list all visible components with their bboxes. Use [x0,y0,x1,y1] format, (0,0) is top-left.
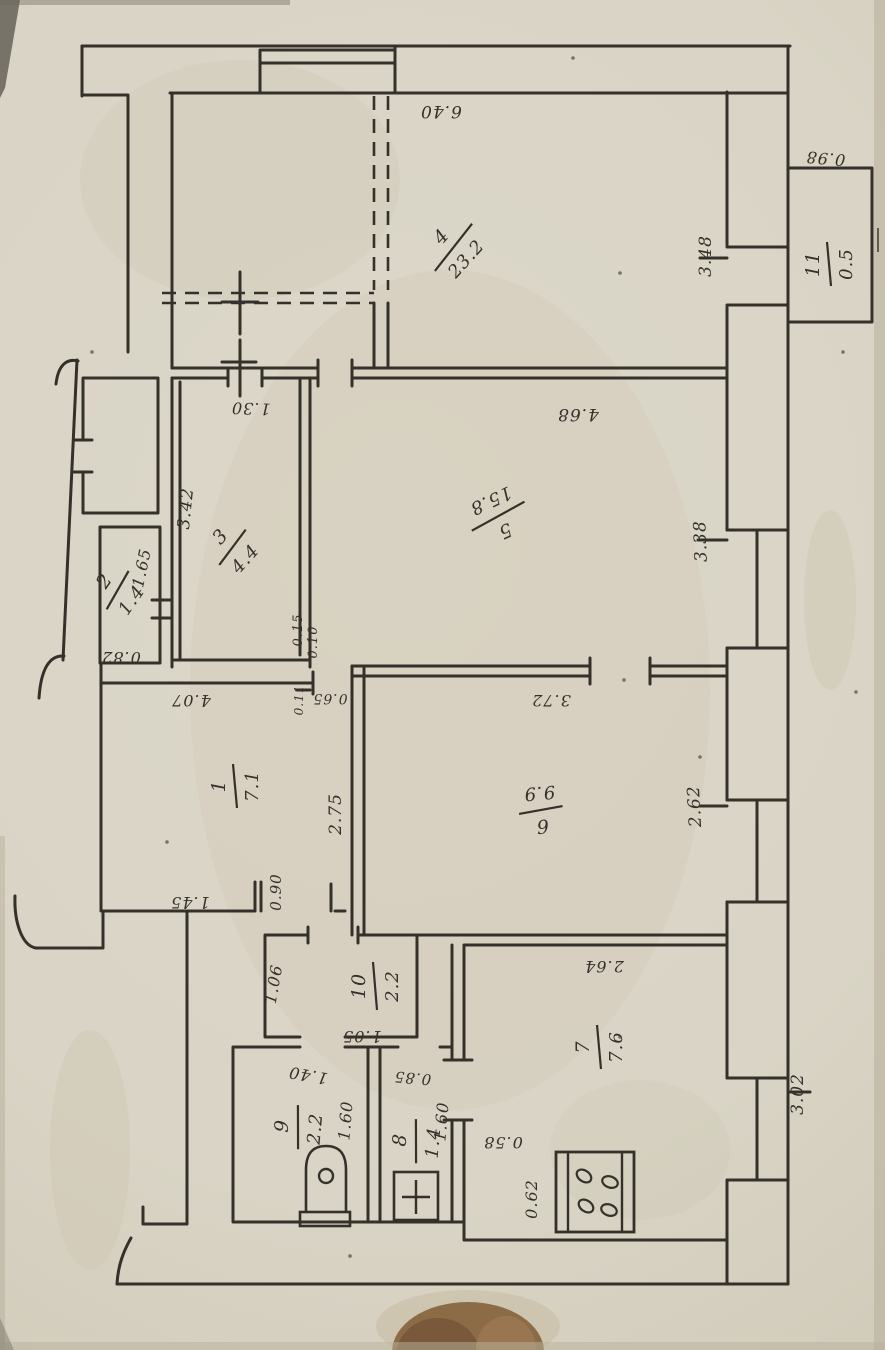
wall-line [15,896,36,948]
wall-line [74,378,158,513]
paper-stain [50,1030,130,1270]
room-area: 1.4 [422,1126,446,1159]
dim-label: 0.62 [522,1179,541,1219]
paper-stain [804,510,856,690]
room-number: 1 [208,779,230,792]
ink-speck [90,350,94,354]
paper-stain [550,1080,730,1220]
dim-label: 0.65 [312,690,347,706]
ink-speck [618,1035,622,1039]
ink-speck [622,678,626,682]
dim-label: 0.15 [291,614,306,647]
dim-label: 1.05 [342,1027,382,1046]
wall-line [39,656,64,698]
dim-label: 0.10 [306,626,321,659]
dim-label: 1.40 [287,1063,329,1089]
floor-plan-photo: 6.400.983.481.304.683.423.381.650.824.07… [0,0,885,1350]
room-number: 10 [348,973,370,999]
room-area: 7.6 [606,1031,627,1063]
photo-corner-shadow [0,0,20,98]
room-area: 7.1 [242,770,263,802]
fraction-line [412,1119,420,1163]
room-area: 2.2 [382,970,403,1003]
dim-label: 3.48 [696,235,716,277]
room-number: 4 [428,224,454,249]
room-label-11: 110.5 [802,242,857,286]
dim-label: 3.02 [788,1073,808,1115]
ink-speck [841,350,845,354]
fraction-line [827,242,831,286]
room-number: 8 [389,1132,412,1147]
wall-line [117,1238,131,1284]
wall-line [143,911,187,1224]
photo-edge-shadow [0,836,5,1350]
dim-label: 4.07 [171,691,212,710]
dim-label: 2.75 [326,793,346,836]
room-label-9: 92.2 [269,1103,328,1152]
ink-speck [854,690,858,694]
photo-edge-shadow [0,1342,885,1350]
dim-label: 0.11 [292,685,306,716]
dim-label: 2.64 [584,957,625,976]
ink-speck [571,56,575,60]
dim-label: 3.42 [174,487,198,531]
dim-label: 1.45 [170,893,210,912]
wall-line [727,247,788,1180]
room-area: 0.5 [836,248,857,280]
room-number: 7 [572,1040,594,1053]
dim-label: 6.40 [420,101,462,121]
dim-label: 0.98 [805,147,846,169]
bathtub-icon [306,1146,346,1212]
room-number: 6 [535,814,550,837]
ink-speck [165,840,169,844]
dim-label: 1.30 [231,398,271,418]
dim-label: 3.72 [531,691,571,710]
dim-label: 3.38 [690,520,711,563]
dim-label: 4.68 [557,404,600,424]
dim-label: 0.82 [101,648,141,667]
dim-label: 0.58 [483,1133,523,1152]
ink-speck [348,1254,352,1258]
photo-edge-shadow [874,0,885,1350]
room-number: 2 [91,569,117,593]
dim-label: 0.90 [267,873,285,910]
dim-label: 0.85 [393,1067,432,1088]
ink-speck [698,755,702,759]
dim-label: 1.60 [334,1100,356,1141]
wall-line [788,168,872,322]
fraction-line [294,1105,302,1149]
ink-speck [618,271,622,275]
photo-edge-shadow [0,0,290,5]
dim-label: 2.62 [684,785,706,829]
room-area: 2.2 [303,1112,327,1146]
room-area: 9.9 [523,781,556,805]
bathtub-drain-icon [319,1169,333,1183]
floor-plan: 6.400.983.481.304.683.423.381.650.824.07… [0,0,885,1350]
bathtub-icon [300,1212,350,1226]
wall-line [63,360,77,660]
toilet-icon [402,1180,430,1214]
room-number: 11 [802,251,824,277]
room-number: 9 [271,1118,294,1133]
